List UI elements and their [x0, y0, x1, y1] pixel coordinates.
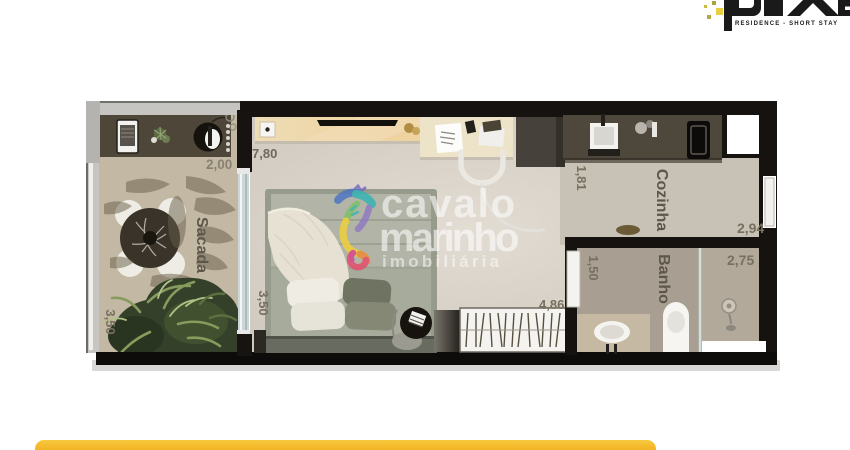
svg-text:Sacada: Sacada [193, 217, 210, 273]
svg-text:2,75: 2,75 [727, 252, 754, 268]
svg-text:3,50: 3,50 [103, 309, 118, 334]
svg-text:1,81: 1,81 [574, 165, 589, 190]
svg-text:2,94: 2,94 [737, 220, 764, 236]
svg-text:imobiliária: imobiliária [382, 252, 502, 271]
svg-text:RESIDENCE - SHORT STAY: RESIDENCE - SHORT STAY [735, 21, 838, 27]
svg-text:7,80: 7,80 [252, 146, 277, 161]
svg-text:1,50: 1,50 [586, 255, 601, 280]
svg-text:Cozinha: Cozinha [653, 169, 670, 231]
svg-text:2,00: 2,00 [206, 157, 232, 172]
svg-text:3,50: 3,50 [256, 290, 271, 315]
svg-text:4,86: 4,86 [539, 297, 564, 312]
svg-text:Banho: Banho [655, 254, 672, 304]
